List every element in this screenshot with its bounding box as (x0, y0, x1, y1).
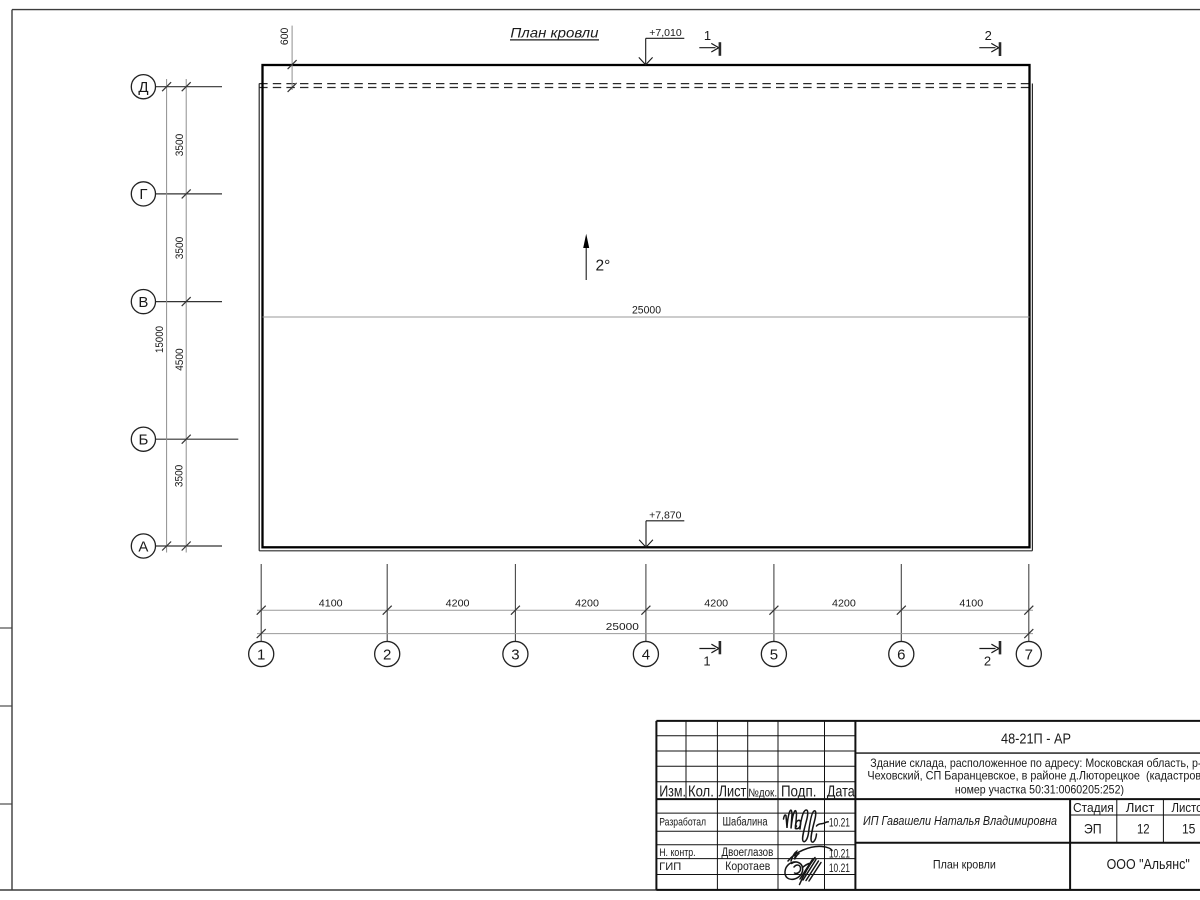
svg-text:12: 12 (1137, 821, 1150, 837)
svg-text:4500: 4500 (174, 348, 186, 370)
svg-text:+7,870: +7,870 (649, 510, 682, 522)
svg-text:ЭП: ЭП (1084, 821, 1102, 837)
svg-text:№док.: №док. (748, 787, 777, 799)
svg-text:4200: 4200 (575, 598, 599, 610)
svg-text:Изм.: Изм. (659, 783, 686, 800)
svg-text:4100: 4100 (959, 598, 983, 610)
svg-text:4100: 4100 (319, 598, 343, 610)
svg-text:4: 4 (642, 646, 650, 663)
svg-text:1: 1 (704, 28, 711, 43)
svg-text:ООО "Альянс": ООО "Альянс" (1107, 857, 1190, 873)
svg-text:4200: 4200 (832, 598, 856, 610)
svg-text:Г: Г (139, 186, 147, 203)
svg-text:номер участка 50:31:0060205:25: номер участка 50:31:0060205:252) (955, 783, 1124, 796)
svg-text:Подп.: Подп. (781, 783, 817, 800)
svg-text:4200: 4200 (704, 598, 728, 610)
svg-text:Дата: Дата (827, 783, 855, 800)
svg-text:Кол.: Кол. (688, 783, 714, 800)
svg-text:Коротаев: Коротаев (725, 861, 770, 873)
svg-text:План кровли: План кровли (510, 24, 598, 40)
svg-text:1: 1 (703, 654, 710, 669)
svg-text:2°: 2° (596, 258, 611, 275)
svg-text:3500: 3500 (174, 237, 186, 259)
svg-text:10.21: 10.21 (829, 863, 850, 875)
svg-text:Двоеглазов: Двоеглазов (722, 847, 774, 859)
svg-text:Разработал: Разработал (659, 817, 706, 829)
svg-text:Лист: Лист (719, 783, 747, 800)
svg-text:15000: 15000 (154, 326, 166, 353)
svg-text:Здание склада, расположенное п: Здание склада, расположенное по адресу: … (870, 757, 1200, 770)
svg-text:Б: Б (138, 432, 148, 449)
svg-text:2: 2 (383, 646, 391, 663)
svg-text:3500: 3500 (173, 465, 185, 487)
svg-text:+7,010: +7,010 (649, 27, 682, 39)
svg-text:Стадия: Стадия (1073, 800, 1114, 815)
svg-text:ГИП: ГИП (659, 861, 681, 873)
svg-text:7: 7 (1025, 646, 1033, 663)
svg-text:1: 1 (257, 646, 265, 663)
svg-text:Чеховский, СП Баранцевское, в: Чеховский, СП Баранцевское, в районе д.Л… (867, 770, 1200, 783)
svg-text:Лист: Лист (1126, 800, 1155, 815)
svg-text:6: 6 (897, 646, 905, 663)
svg-text:ИП Гавашели Наталья Владимиров: ИП Гавашели Наталья Владимировна (863, 814, 1057, 828)
svg-text:25000: 25000 (606, 621, 639, 633)
svg-text:Д: Д (138, 79, 148, 96)
svg-text:10.21: 10.21 (829, 818, 850, 830)
svg-text:А: А (138, 538, 148, 555)
svg-text:600: 600 (279, 28, 291, 45)
svg-text:План кровли: План кровли (933, 858, 996, 872)
svg-text:48-21П - АР: 48-21П - АР (1001, 732, 1071, 748)
svg-text:15: 15 (1182, 821, 1196, 837)
svg-text:2: 2 (984, 654, 991, 669)
svg-text:В: В (138, 294, 148, 311)
svg-text:25000: 25000 (632, 305, 661, 317)
svg-text:4200: 4200 (446, 598, 470, 610)
svg-text:Шабалина: Шабалина (722, 817, 768, 829)
svg-text:3: 3 (511, 646, 519, 663)
svg-text:Н. контр.: Н. контр. (659, 847, 695, 859)
svg-text:3500: 3500 (174, 134, 186, 156)
svg-text:Листов: Листов (1172, 800, 1200, 815)
svg-text:5: 5 (770, 646, 778, 663)
svg-text:2: 2 (985, 28, 992, 43)
